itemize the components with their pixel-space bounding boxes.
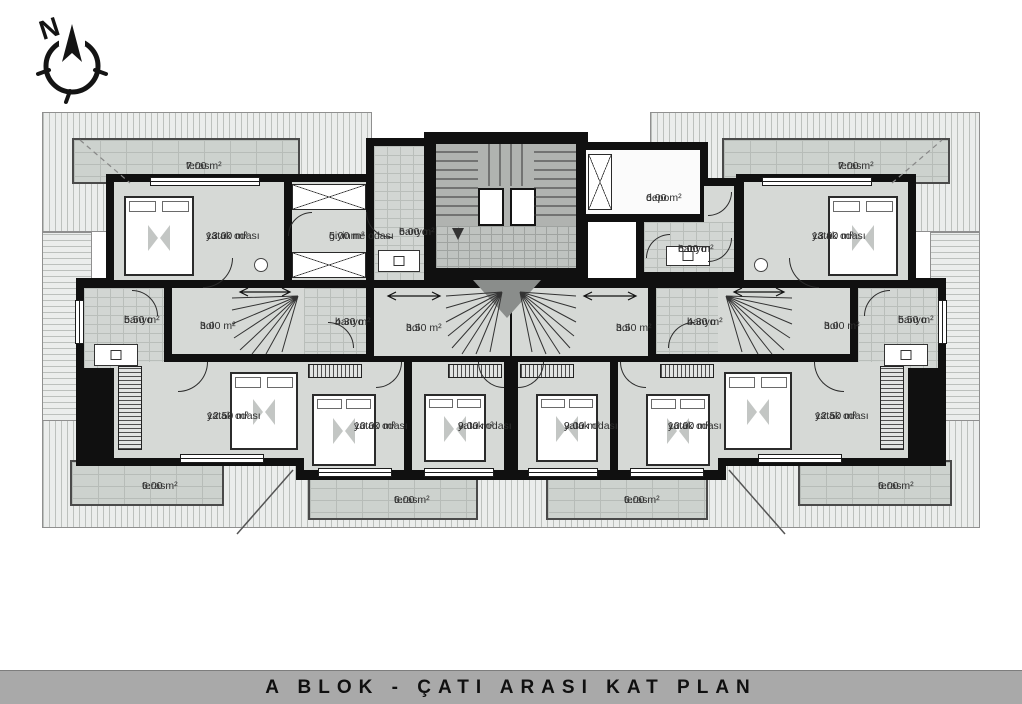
linework-overlay [0, 0, 1022, 704]
floor-plan-sheet: teras7.00 m² yatak odası13.00 m² giyinme… [0, 0, 1022, 704]
north-compass-icon: N [22, 6, 122, 110]
title-bar: A BLOK - ÇATI ARASI KAT PLAN [0, 670, 1022, 704]
svg-text:N: N [35, 11, 63, 46]
